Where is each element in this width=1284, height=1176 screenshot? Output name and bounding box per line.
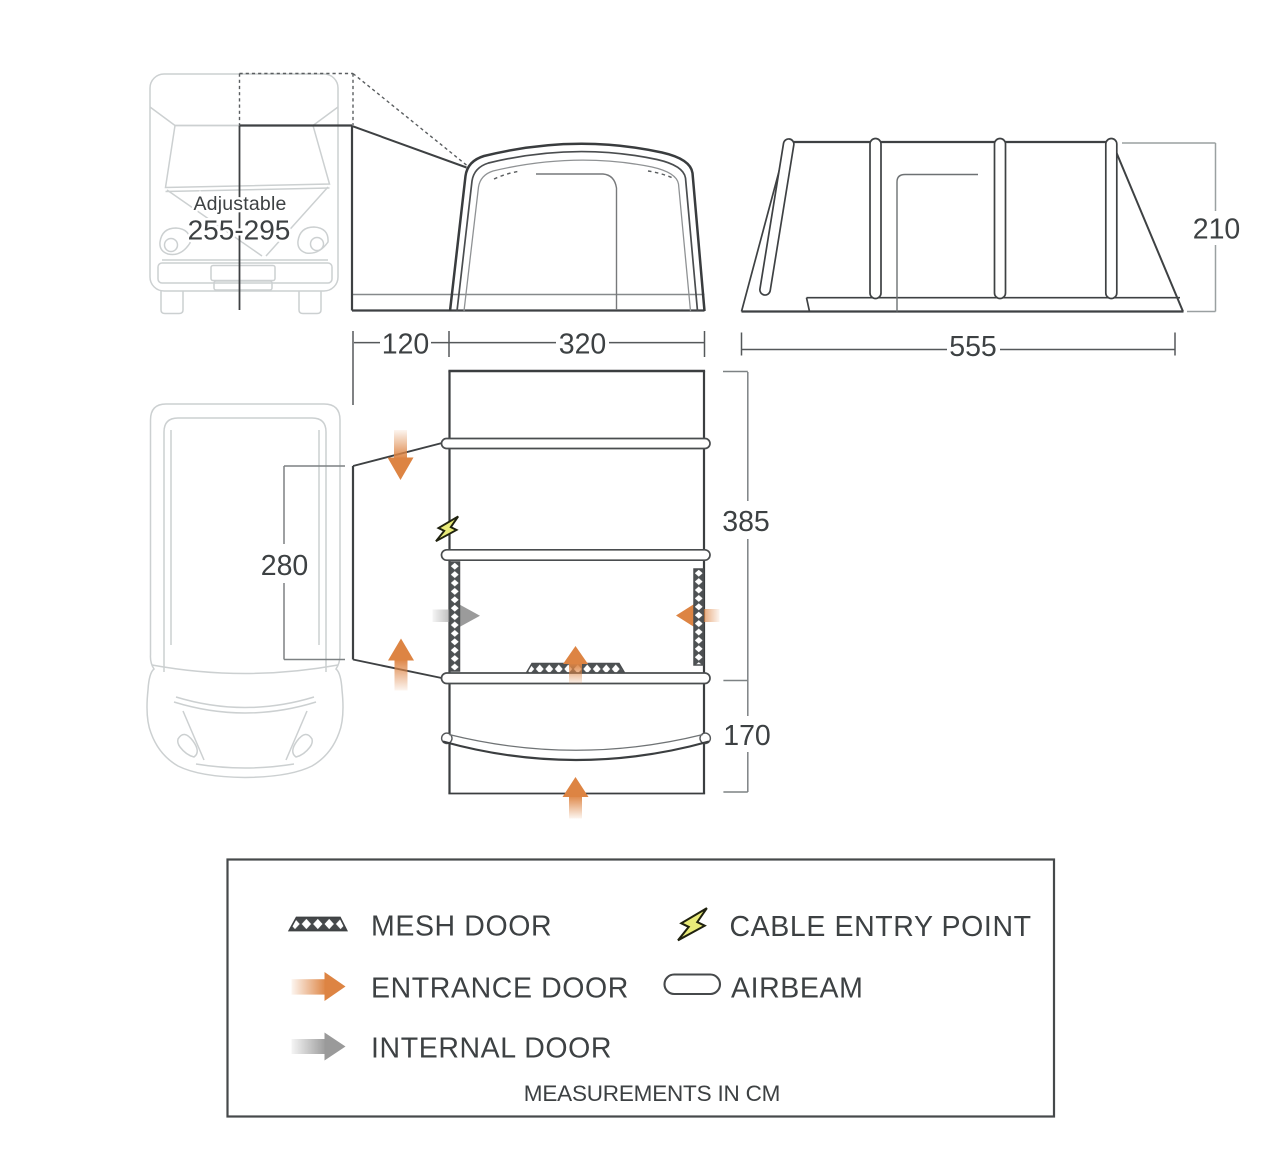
- svg-text:555: 555: [949, 331, 997, 363]
- svg-text:170: 170: [723, 720, 771, 752]
- svg-text:MESH DOOR: MESH DOOR: [371, 911, 552, 943]
- svg-text:MEASUREMENTS IN CM: MEASUREMENTS IN CM: [524, 1081, 780, 1106]
- svg-text:385: 385: [722, 506, 770, 538]
- svg-text:CABLE ENTRY POINT: CABLE ENTRY POINT: [730, 911, 1032, 943]
- svg-text:280: 280: [261, 550, 309, 582]
- svg-text:Adjustable: Adjustable: [193, 193, 286, 215]
- svg-text:AIRBEAM: AIRBEAM: [731, 973, 863, 1005]
- svg-text:320: 320: [559, 329, 607, 361]
- svg-text:ENTRANCE DOOR: ENTRANCE DOOR: [371, 973, 629, 1005]
- svg-text:INTERNAL DOOR: INTERNAL DOOR: [371, 1033, 612, 1065]
- svg-text:210: 210: [1193, 214, 1241, 246]
- svg-text:120: 120: [382, 329, 430, 361]
- svg-text:255-295: 255-295: [188, 215, 291, 246]
